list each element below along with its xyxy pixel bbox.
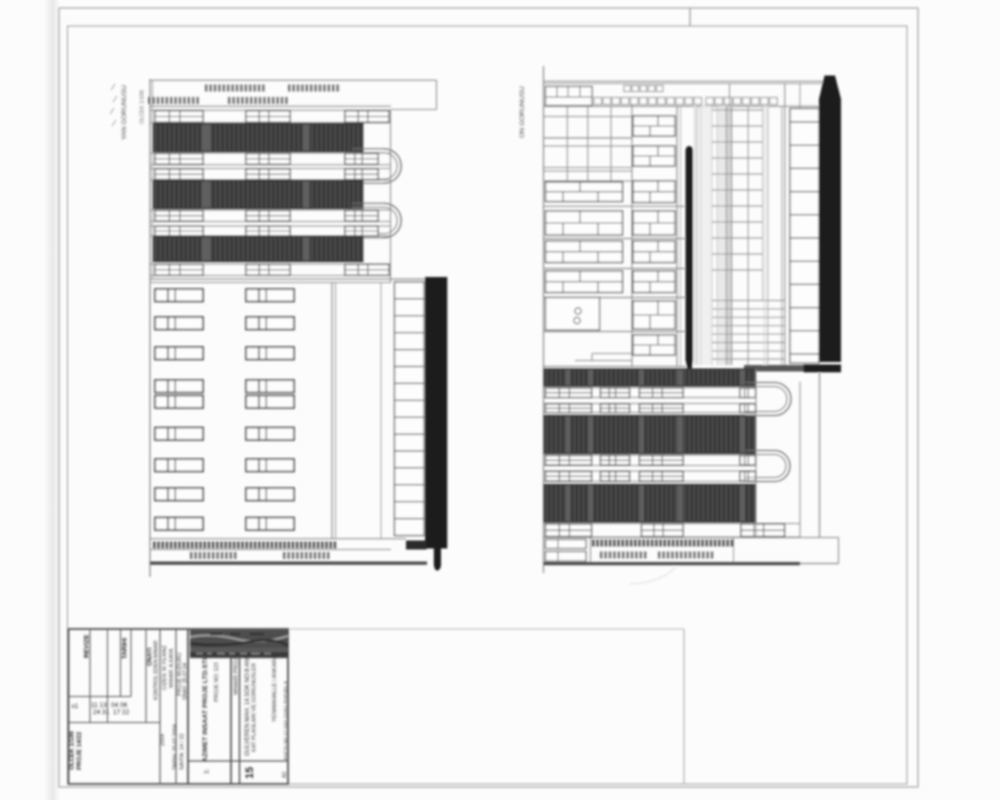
svg-text:15: 15 bbox=[244, 767, 256, 779]
svg-text:SAYFA: 14 / 22: SAYFA: 14 / 22 bbox=[180, 734, 186, 770]
svg-text:OLCEK 1/100: OLCEK 1/100 bbox=[140, 90, 146, 124]
svg-text:OLCEK 1/100: OLCEK 1/100 bbox=[69, 731, 76, 770]
svg-text:11 13: 11 13 bbox=[91, 702, 107, 709]
svg-text:ON GORUNUSU: ON GORUNUSU bbox=[519, 86, 526, 138]
svg-text:2004: 2004 bbox=[160, 734, 166, 746]
svg-text:04 06: 04 06 bbox=[111, 702, 128, 709]
svg-text:PAFTA NO 17 ADA 22451 PARSEL 8: PAFTA NO 17 ADA 22451 PARSEL 8 bbox=[283, 681, 289, 760]
svg-text:GULVEREN MAH. 14.SOK NO:8 ANK.: GULVEREN MAH. 14.SOK NO:8 ANK. bbox=[245, 653, 251, 756]
svg-text:KAT PLANLARI VE GORUNUSLER: KAT PLANLARI VE GORUNUSLER bbox=[252, 663, 258, 752]
svg-text:MIMAR: A.KAYA: MIMAR: A.KAYA bbox=[169, 648, 175, 688]
svg-text:TARIHI: TARIHI bbox=[122, 638, 129, 659]
svg-text:YAN GORUNUSU: YAN GORUNUSU bbox=[121, 85, 128, 140]
svg-text:17 22: 17 22 bbox=[113, 709, 130, 716]
svg-text:1:: 1: bbox=[204, 768, 211, 774]
svg-text:KONTROL EDEN MIMAR: KONTROL EDEN MIMAR bbox=[154, 640, 160, 700]
svg-text:CIZEN: M.YILMAZ: CIZEN: M.YILMAZ bbox=[162, 645, 168, 690]
svg-text:REVIZE: REVIZE bbox=[84, 634, 91, 658]
svg-text:AZIMET INSAAT PROJE LTD.STI.: AZIMET INSAAT PROJE LTD.STI. bbox=[202, 656, 209, 762]
svg-text:MIMARI PROJE: MIMARI PROJE bbox=[234, 654, 240, 695]
svg-text:PROJE 14/22: PROJE 14/22 bbox=[76, 731, 83, 770]
svg-text:ONAY: 25.07.04: ONAY: 25.07.04 bbox=[183, 663, 189, 700]
svg-text:24 31: 24 31 bbox=[93, 709, 110, 716]
svg-text:A3: A3 bbox=[282, 772, 288, 778]
svg-text:o1: o1 bbox=[72, 704, 79, 710]
svg-text:YENIMAHALLE / ANKARA: YENIMAHALLE / ANKARA bbox=[272, 655, 278, 722]
svg-text:TARIH: 25.07.2004: TARIH: 25.07.2004 bbox=[173, 724, 179, 770]
svg-text:PROJE NO: 123: PROJE NO: 123 bbox=[214, 662, 220, 702]
